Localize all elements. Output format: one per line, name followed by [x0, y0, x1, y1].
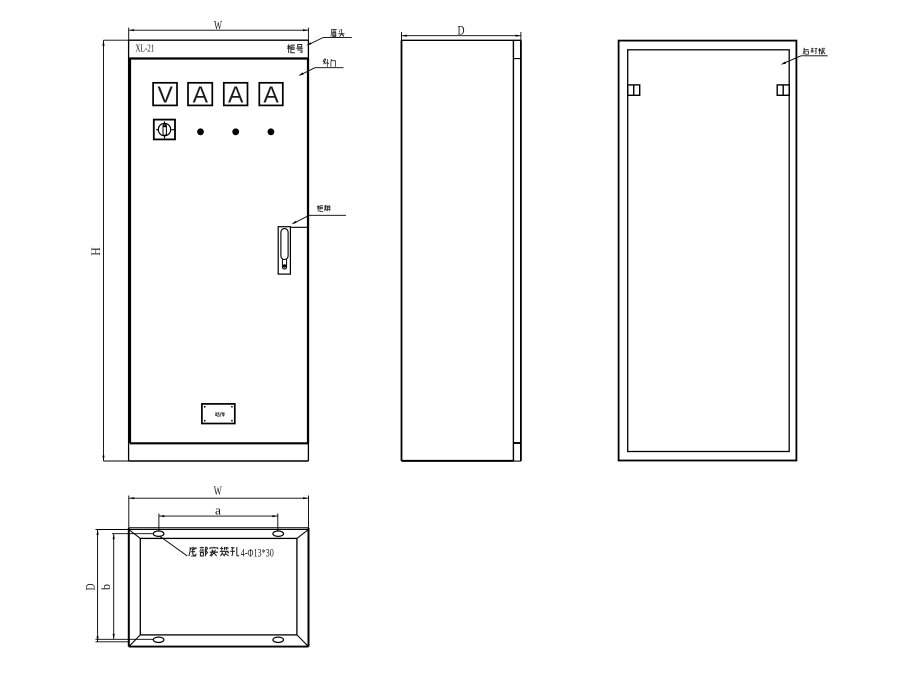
svg-text:XL-21: XL-21: [135, 44, 154, 55]
svg-text:V: V: [158, 81, 174, 107]
svg-text:D: D: [458, 23, 465, 37]
svg-text:A: A: [193, 81, 209, 107]
svg-text:W: W: [214, 484, 222, 498]
svg-text:A: A: [263, 81, 279, 107]
svg-text:D: D: [84, 584, 98, 591]
svg-text:A: A: [228, 81, 244, 107]
svg-text:4-Φ13*30: 4-Φ13*30: [241, 547, 274, 559]
svg-text:H: H: [89, 247, 103, 256]
svg-text:a: a: [215, 504, 221, 518]
svg-text:W: W: [214, 19, 222, 33]
svg-text:b: b: [99, 584, 113, 590]
